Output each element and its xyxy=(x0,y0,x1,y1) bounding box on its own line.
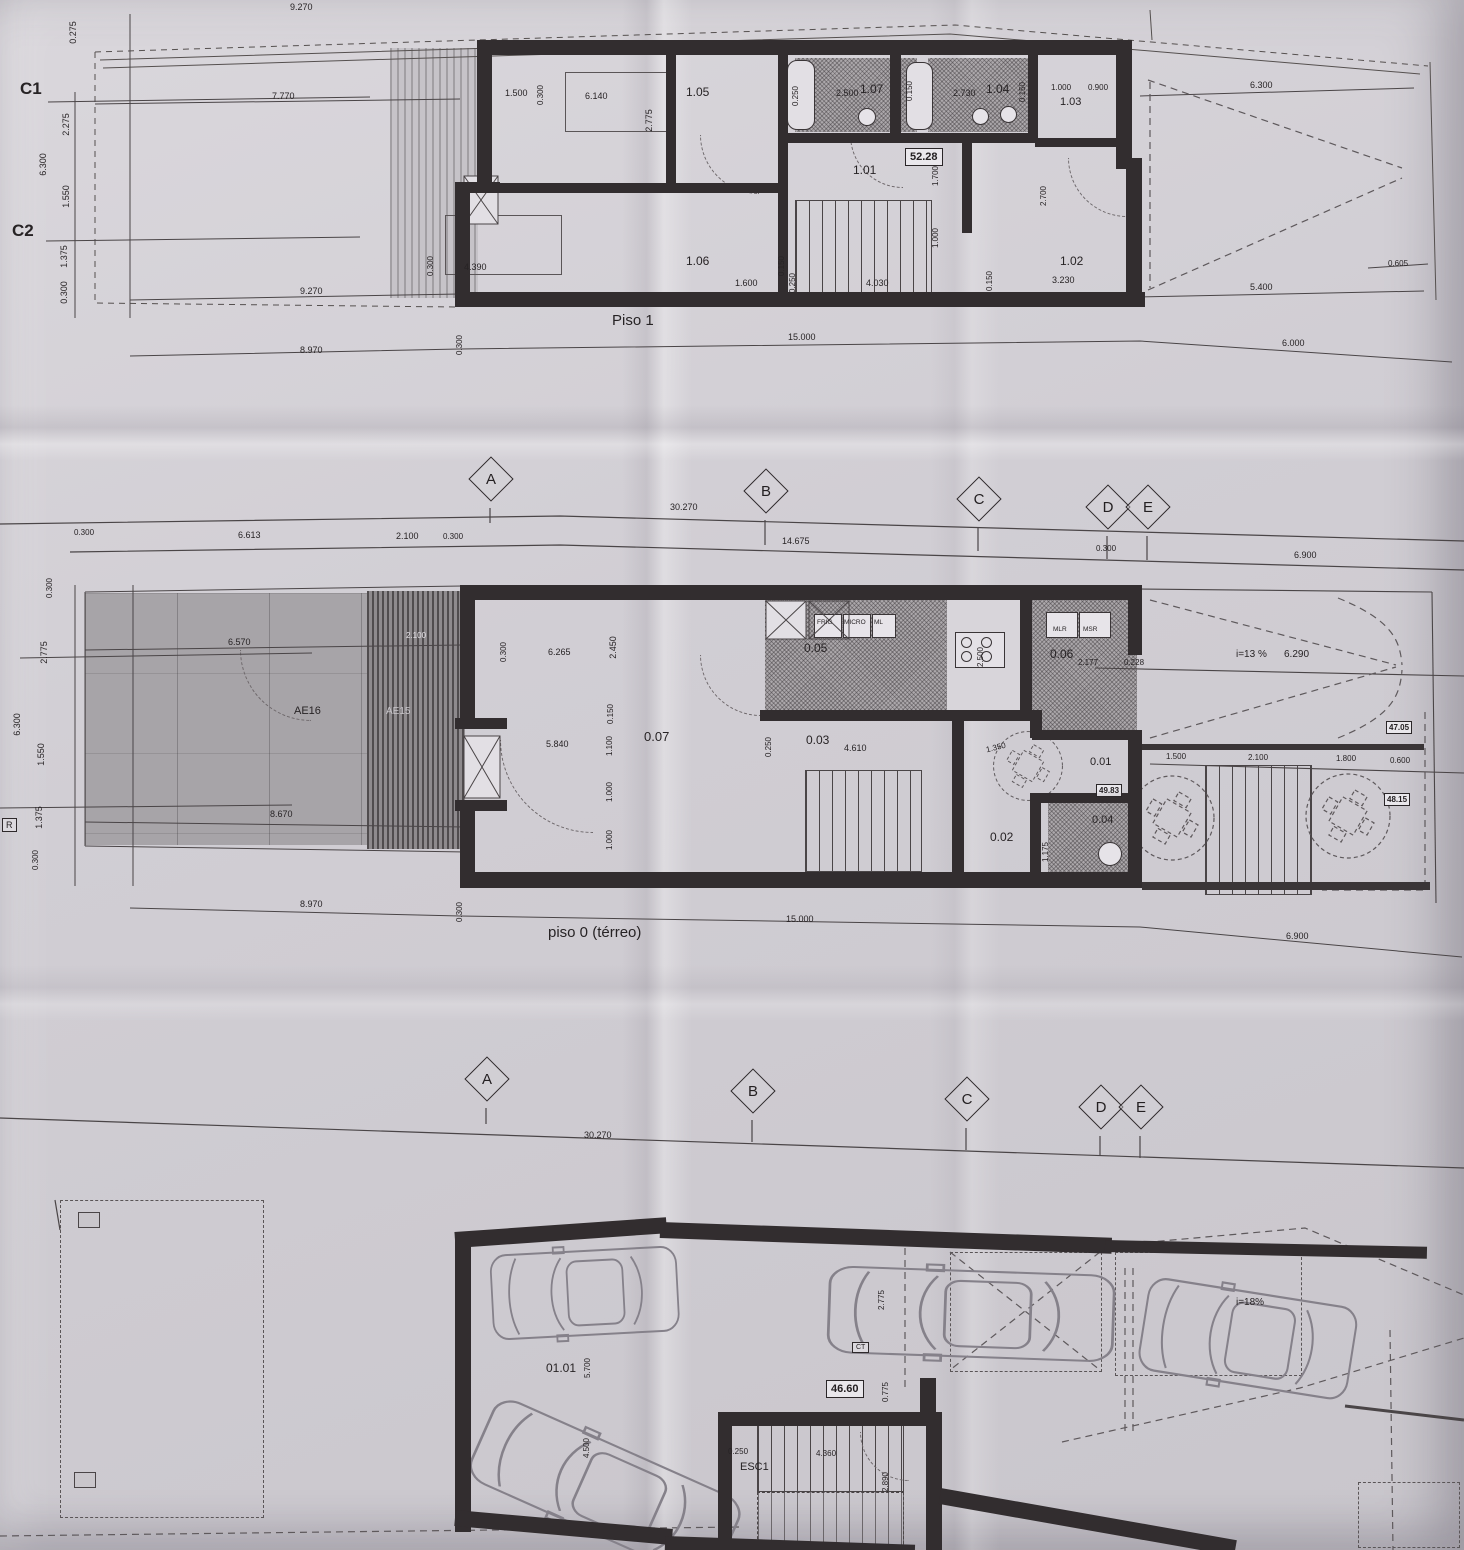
area-badge-garage: 46.60 xyxy=(826,1380,864,1398)
room-label-005: 0.05 xyxy=(804,642,827,654)
dim-label: 1.550 xyxy=(62,185,71,208)
dim-label: 1.800 xyxy=(1336,755,1356,763)
dim-label: 6.300 xyxy=(13,713,22,736)
dim-label: 0.300 xyxy=(60,281,69,304)
room-label-001: 0.01 xyxy=(1090,757,1111,768)
room-label-002: 0.02 xyxy=(990,831,1013,843)
dim-label: 15.000 xyxy=(786,915,814,924)
dim-label: 30.270 xyxy=(670,503,698,512)
appliance-label-frig: FRIG xyxy=(817,620,833,627)
dim-label: 0.300 xyxy=(456,902,464,922)
dim-label: 8.670 xyxy=(270,810,293,819)
dim-label: 0.150 xyxy=(607,704,615,724)
dim-label: 4.610 xyxy=(844,744,867,753)
dim-label: 0.605 xyxy=(1388,260,1408,268)
dim-label: 2.500 xyxy=(836,89,859,98)
dim-label: 0.150 xyxy=(778,256,786,276)
dim-label: 0.228 xyxy=(1124,659,1144,667)
dim-label: 1.000 xyxy=(932,228,940,248)
dim-label: 6.613 xyxy=(238,531,261,540)
dim-label: 9.270 xyxy=(300,287,323,296)
dim-label: 0.150 xyxy=(986,271,994,291)
dim-label: 1.500 xyxy=(1166,753,1186,761)
dim-label: 3.230 xyxy=(1052,276,1075,285)
dim-label: 6.000 xyxy=(1282,339,1305,348)
dim-label: 6.900 xyxy=(1294,551,1317,560)
dim-label: 1.100 xyxy=(606,736,614,756)
dim-label: 5.840 xyxy=(546,740,569,749)
area-badge-piso1: 52.28 xyxy=(905,148,943,166)
dim-label: 1.500 xyxy=(505,89,528,98)
dim-label: 9.270 xyxy=(290,3,313,12)
dim-label: 1.700 xyxy=(932,166,940,186)
dim-label: 0.300 xyxy=(46,578,54,598)
dim-label: 0.300 xyxy=(32,850,40,870)
dim-label: 2.500 xyxy=(977,647,985,667)
area-badge-4815: 48.15 xyxy=(1384,793,1410,806)
room-label-103: 1.03 xyxy=(1060,97,1081,108)
zone-label-ae16: AE16 xyxy=(294,706,321,717)
dim-label: 1.375 xyxy=(60,245,69,268)
dim-label: 0.300 xyxy=(443,533,463,541)
dim-label: 1.000 xyxy=(606,782,614,802)
dim-label: 0.250 xyxy=(792,86,800,106)
dim-label: 8.970 xyxy=(300,346,323,355)
plan-title-piso0: piso 0 (térreo) xyxy=(548,925,641,940)
dim-label: 0.250 xyxy=(728,1448,748,1456)
dim-label: 0.150 xyxy=(1019,82,1027,102)
zone-label-ae15: AE15 xyxy=(386,707,410,717)
appliance-label-micro: MICRO xyxy=(844,620,866,627)
stair-label-esc1: ESC1 xyxy=(740,1462,769,1473)
dim-label: 2.775 xyxy=(878,1290,886,1310)
plan-title-piso1: Piso 1 xyxy=(612,313,654,328)
dim-label: 2.450 xyxy=(609,636,618,659)
dim-label: 6.570 xyxy=(228,638,251,647)
dim-label: 0.250 xyxy=(765,737,773,757)
dim-label: 2.775 xyxy=(645,109,654,132)
dim-label: 6.290 xyxy=(1284,650,1309,660)
dim-label: 4.360 xyxy=(816,1450,836,1458)
dim-label: 0.300 xyxy=(1096,545,1116,553)
dim-label: 2.100 xyxy=(1248,754,1268,762)
appliance-label-msr: MSR xyxy=(1083,627,1097,634)
dim-label: 0.300 xyxy=(74,529,94,537)
dim-label: 6.265 xyxy=(548,648,571,657)
r-marker-box: R xyxy=(2,818,17,832)
dim-label: 2.177 xyxy=(1078,659,1098,667)
area-badge-4983: 49.83 xyxy=(1096,784,1122,797)
dim-label: 1.375 xyxy=(35,806,44,829)
dim-label: 0.600 xyxy=(1390,757,1410,765)
dim-label: 2.100 xyxy=(396,532,419,541)
room-label-007: 0.07 xyxy=(644,730,669,743)
room-label-003: 0.03 xyxy=(806,734,829,746)
dim-label: 6.300 xyxy=(39,153,48,176)
grid-row-label-c2: C2 xyxy=(12,222,34,239)
room-label-105: 1.05 xyxy=(686,86,709,98)
dim-label: 5.700 xyxy=(584,1358,592,1378)
dim-label: 15.000 xyxy=(788,333,816,342)
dim-label: 2.890 xyxy=(882,1472,890,1492)
dim-label: 2.100 xyxy=(406,632,426,640)
dim-label: 0.900 xyxy=(1088,84,1108,92)
scanned-floor-plan-sheet: A B C D E A B C D E 9.270 0.275 C1 7.770… xyxy=(0,0,1464,1550)
dim-label: 14.675 xyxy=(782,537,810,546)
linework-layer xyxy=(0,0,1464,1550)
dim-label: 0.250 xyxy=(789,273,797,293)
room-label-107: 1.07 xyxy=(860,83,883,95)
room-label-0101: 01.01 xyxy=(546,1362,576,1374)
room-label-102: 1.02 xyxy=(1060,255,1083,267)
dim-label: 4.030 xyxy=(866,279,889,288)
dim-label: 2.700 xyxy=(1040,186,1048,206)
dim-label: 1.000 xyxy=(1051,84,1071,92)
appliance-label-mlr: MLR xyxy=(1053,627,1067,634)
room-label-104: 1.04 xyxy=(986,83,1009,95)
ramp-slope-label: i=13 % xyxy=(1236,650,1267,660)
appliance-label-ml: ML xyxy=(874,620,883,627)
dim-label: 5.400 xyxy=(1250,283,1273,292)
dim-label: 6.300 xyxy=(1250,81,1273,90)
dim-label: 2.775 xyxy=(40,641,49,664)
area-badge-4705: 47.05 xyxy=(1386,721,1412,734)
dim-label: 0.300 xyxy=(427,256,435,276)
dim-label: 0.275 xyxy=(69,21,78,44)
dim-label: 0.300 xyxy=(500,642,508,662)
dim-label: 1.175 xyxy=(1042,842,1050,862)
dim-label: 1.600 xyxy=(735,279,758,288)
grid-row-label-c1: C1 xyxy=(20,80,42,97)
dim-label: 4.390 xyxy=(464,263,487,272)
dim-label: 7.770 xyxy=(272,92,295,101)
room-label-006: 0.06 xyxy=(1050,648,1073,660)
room-label-101: 1.01 xyxy=(853,164,876,176)
dim-label: 1.000 xyxy=(606,830,614,850)
dim-label: 2.275 xyxy=(62,113,71,136)
room-label-004: 0.04 xyxy=(1092,815,1113,826)
dim-label: 0.300 xyxy=(537,85,545,105)
ramp-slope-label-garage: i=18% xyxy=(1236,1298,1264,1308)
dim-label: 1.550 xyxy=(37,743,46,766)
dim-label: 0.775 xyxy=(882,1382,890,1402)
dim-label: 6.140 xyxy=(585,92,608,101)
dim-label: 6.900 xyxy=(1286,932,1309,941)
ct-marker-box: CT xyxy=(852,1342,869,1353)
dim-label: 8.970 xyxy=(300,900,323,909)
dim-label: 4.500 xyxy=(583,1438,591,1458)
dim-label: 2.730 xyxy=(953,89,976,98)
dim-label: 30.270 xyxy=(584,1131,612,1140)
dim-label: 0.150 xyxy=(906,81,914,101)
room-label-106: 1.06 xyxy=(686,255,709,267)
dim-label: 0.300 xyxy=(456,335,464,355)
